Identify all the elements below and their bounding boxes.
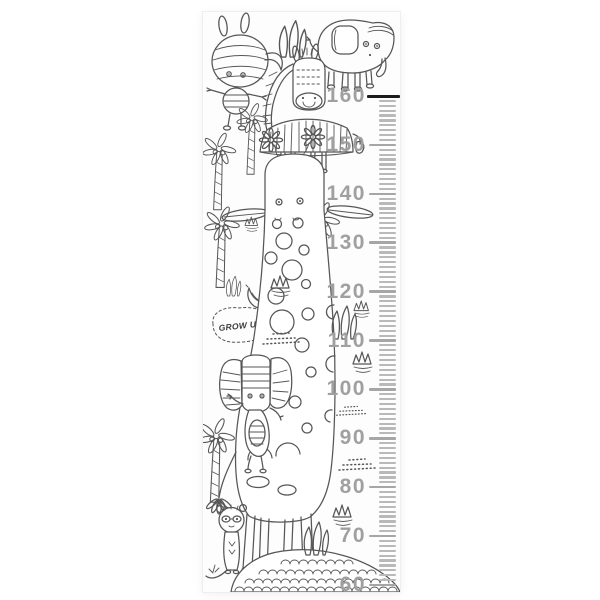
- ruler-minor-tick: [379, 349, 396, 351]
- ruler-minor-tick: [379, 237, 396, 239]
- ruler-minor-tick: [379, 564, 396, 566]
- ruler-minor-tick: [379, 427, 396, 429]
- ruler-minor-tick: [379, 496, 396, 498]
- ruler-minor-tick: [379, 198, 396, 200]
- ruler-minor-tick: [379, 286, 396, 288]
- ruler-minor-tick: [379, 168, 396, 170]
- ruler-minor-tick: [379, 374, 396, 376]
- ruler-minor-tick: [379, 281, 396, 283]
- ruler-minor-tick: [379, 559, 396, 561]
- ruler-minor-tick: [379, 413, 396, 415]
- ruler-minor-tick: [379, 359, 396, 361]
- ruler-minor-tick: [379, 452, 396, 454]
- ruler-minor-tick: [379, 256, 396, 258]
- ruler-minor-tick: [379, 335, 396, 337]
- ruler-minor-tick: [379, 149, 396, 151]
- ruler-minor-tick: [379, 369, 396, 371]
- ruler-minor-tick: [379, 276, 396, 278]
- ruler-minor-tick: [379, 232, 396, 234]
- ruler-minor-tick: [379, 530, 396, 532]
- ruler-minor-tick: [379, 545, 396, 547]
- ruler-minor-tick: [379, 457, 396, 459]
- ruler-major-tick-100: [369, 388, 396, 391]
- ruler-minor-tick: [379, 158, 396, 160]
- ruler-minor-tick: [379, 110, 396, 112]
- ruler-minor-tick: [379, 183, 396, 185]
- ruler-minor-tick: [379, 408, 396, 410]
- ruler-major-tick-90: [369, 437, 396, 440]
- ruler-number-120: 120: [326, 281, 366, 302]
- ruler-number-80: 80: [340, 476, 366, 497]
- ruler-minor-tick: [379, 163, 396, 165]
- ruler-minor-tick: [379, 212, 396, 214]
- ruler-minor-tick: [379, 188, 396, 190]
- ruler-minor-tick: [379, 320, 396, 322]
- ruler-minor-tick: [379, 266, 396, 268]
- ruler-minor-tick: [379, 305, 396, 307]
- ruler-minor-tick: [379, 222, 396, 224]
- ruler-minor-tick: [379, 462, 396, 464]
- ruler-minor-tick: [379, 467, 396, 469]
- ruler-minor-tick: [379, 471, 396, 473]
- ruler-minor-tick: [379, 379, 396, 381]
- ruler-minor-tick: [379, 447, 396, 449]
- growth-chart-panel: GROW UP!: [203, 12, 400, 592]
- ruler-minor-tick: [379, 344, 396, 346]
- ruler-minor-tick: [379, 114, 396, 116]
- ruler-minor-tick: [379, 398, 396, 400]
- ruler-number-150: 150: [326, 134, 366, 155]
- ruler-minor-tick: [379, 418, 396, 420]
- ruler-minor-tick: [379, 202, 396, 204]
- ruler-minor-tick: [379, 310, 396, 312]
- ruler-minor-tick: [379, 139, 396, 141]
- ruler-major-tick-160: [367, 95, 400, 98]
- ruler-minor-tick: [379, 246, 396, 248]
- ruler-minor-tick: [379, 129, 396, 131]
- ruler-minor-tick: [379, 520, 396, 522]
- ruler-minor-tick: [379, 432, 396, 434]
- ruler-minor-tick: [379, 403, 396, 405]
- ruler-minor-tick: [379, 501, 396, 503]
- ruler-minor-tick: [379, 173, 396, 175]
- ruler-major-tick-130: [369, 241, 396, 244]
- ruler-minor-tick: [379, 579, 396, 581]
- ruler-minor-tick: [379, 550, 396, 552]
- ruler-number-130: 130: [326, 232, 366, 253]
- ruler-minor-tick: [379, 423, 396, 425]
- ruler-minor-tick: [379, 134, 396, 136]
- ruler-minor-tick: [379, 574, 396, 576]
- ruler-minor-tick: [379, 515, 396, 517]
- ruler-minor-tick: [379, 295, 396, 297]
- ruler-minor-tick: [379, 354, 396, 356]
- ruler-major-tick-80: [369, 486, 396, 489]
- ruler-minor-tick: [379, 315, 396, 317]
- ruler-minor-tick: [379, 506, 396, 508]
- ruler-minor-tick: [379, 105, 396, 107]
- ruler-minor-tick: [379, 511, 396, 513]
- ruler-minor-tick: [379, 393, 396, 395]
- ruler-minor-tick: [379, 100, 396, 102]
- ruler-number-100: 100: [326, 378, 366, 399]
- ruler-minor-tick: [379, 555, 396, 557]
- ruler-minor-tick: [379, 442, 396, 444]
- ruler-major-tick-140: [369, 193, 396, 196]
- ruler-minor-tick: [379, 217, 396, 219]
- ruler-minor-tick: [379, 330, 396, 332]
- ruler-major-tick-60: [369, 584, 396, 587]
- ruler-minor-tick: [379, 569, 396, 571]
- ruler-minor-tick: [379, 271, 396, 273]
- ruler-minor-tick: [379, 300, 396, 302]
- ruler-minor-tick: [379, 154, 396, 156]
- ruler-minor-tick: [379, 491, 396, 493]
- ruler-number-140: 140: [326, 183, 366, 204]
- ruler-minor-tick: [379, 119, 396, 121]
- ruler-major-tick-110: [369, 339, 396, 342]
- product-photo: GROW UP!: [0, 0, 600, 600]
- ruler-minor-tick: [379, 364, 396, 366]
- ruler-minor-tick: [379, 124, 396, 126]
- ruler-minor-tick: [379, 207, 396, 209]
- ruler-number-60: 60: [340, 574, 366, 595]
- ruler-minor-tick: [379, 325, 396, 327]
- ruler-major-tick-70: [369, 535, 396, 538]
- ruler-minor-tick: [379, 540, 396, 542]
- ruler-minor-tick: [379, 383, 396, 385]
- ruler-number-70: 70: [340, 525, 366, 546]
- ruler-minor-tick: [379, 178, 396, 180]
- ruler-minor-tick: [379, 481, 396, 483]
- ruler-minor-tick: [379, 476, 396, 478]
- ruler-major-tick-150: [369, 144, 396, 147]
- height-ruler: 16015014013012011010090807060: [203, 12, 400, 592]
- ruler-number-110: 110: [328, 330, 366, 351]
- ruler-minor-tick: [379, 525, 396, 527]
- ruler-minor-tick: [379, 227, 396, 229]
- ruler-minor-tick: [379, 261, 396, 263]
- ruler-minor-tick: [379, 251, 396, 253]
- ruler-number-90: 90: [340, 427, 366, 448]
- ruler-major-tick-120: [369, 290, 396, 293]
- ruler-number-160: 160: [326, 85, 366, 106]
